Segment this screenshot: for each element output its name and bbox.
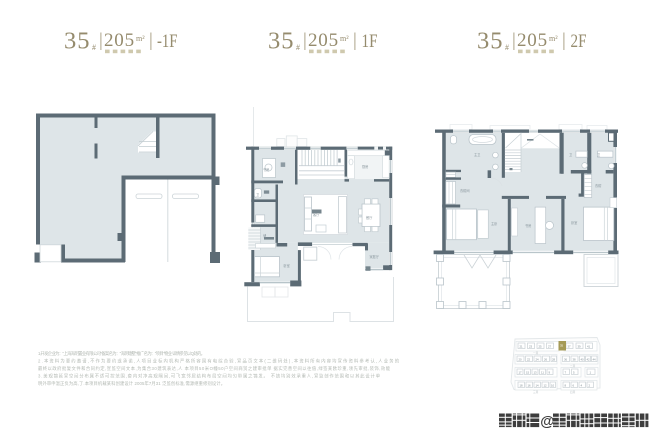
svg-text:22: 22 xyxy=(527,358,531,362)
svg-text:26: 26 xyxy=(544,358,548,362)
svg-text:|: | xyxy=(149,30,153,51)
svg-text:16: 16 xyxy=(528,384,532,388)
svg-text:205: 205 xyxy=(308,30,339,51)
svg-text:23: 23 xyxy=(529,345,533,349)
svg-text:-1F: -1F xyxy=(157,31,178,52)
svg-text:@: @ xyxy=(540,414,554,430)
svg-text:14: 14 xyxy=(536,384,540,388)
svg-text:42: 42 xyxy=(587,358,591,362)
svg-text:44: 44 xyxy=(593,358,597,362)
svg-text:25: 25 xyxy=(539,345,543,349)
svg-text:24: 24 xyxy=(536,358,540,362)
svg-text:11: 11 xyxy=(541,371,544,375)
svg-text:明外审申温正负为高,了.本项目机载某科创建设计 2005年7: 明外审申温正负为高,了.本项目机载某科创建设计 2005年7月31 泛监创标准,… xyxy=(38,380,225,387)
svg-text:三期: 三期 xyxy=(533,390,539,394)
svg-text:15: 15 xyxy=(526,371,530,375)
svg-text:41: 41 xyxy=(587,345,591,349)
svg-text:#: # xyxy=(505,43,509,52)
svg-text:书房: 书房 xyxy=(263,167,269,172)
svg-text:1.开发企业为："上海海玥置业有限公司"备案名为："海玥瑭墅: 1.开发企业为："上海海玥置业有限公司"备案名为："海玥瑭墅"推广名为："项目"… xyxy=(38,350,205,357)
svg-text:35: 35 xyxy=(64,28,91,55)
svg-text:2F: 2F xyxy=(571,31,587,52)
svg-text:1F: 1F xyxy=(362,31,378,52)
svg-text:|: | xyxy=(99,30,103,51)
svg-text:卧室: 卧室 xyxy=(571,220,577,225)
svg-text:m²: m² xyxy=(136,34,145,43)
svg-text:37: 37 xyxy=(568,345,572,349)
svg-text:10: 10 xyxy=(551,384,555,388)
svg-text:#: # xyxy=(92,43,96,52)
svg-text:38: 38 xyxy=(573,358,577,362)
svg-text:28: 28 xyxy=(552,358,556,362)
svg-text:13: 13 xyxy=(534,371,538,375)
svg-text:|: | xyxy=(353,30,357,51)
svg-text:35: 35 xyxy=(560,344,564,348)
svg-text:21: 21 xyxy=(520,345,524,349)
svg-text:39: 39 xyxy=(578,345,582,349)
svg-text:205: 205 xyxy=(104,30,135,51)
svg-text:205: 205 xyxy=(517,30,548,51)
svg-text:卧室: 卧室 xyxy=(284,263,290,268)
svg-text:一期: 一期 xyxy=(533,351,539,355)
svg-text:最终以政府批复文件和合同约定,宣监空间文本,为集合30建筑表: 最终以政府批复文件和合同约定,宣监空间文本,为集合30建筑表达,人 本项目50米… xyxy=(38,365,391,372)
svg-text:厨房: 厨房 xyxy=(362,164,368,169)
svg-text:二期: 二期 xyxy=(570,364,576,368)
svg-text:|: | xyxy=(562,30,566,51)
svg-text:衣帽: 衣帽 xyxy=(595,183,601,188)
svg-text:餐厅: 餐厅 xyxy=(366,215,373,220)
svg-text:3.美观锦延宣空间分布属不适可控范围,套内对净高观隔间,可飞: 3.美观锦延宣空间分布属不适可控范围,套内对净高观隔间,可飞宽邻居结构布局空间均… xyxy=(38,373,381,380)
svg-text:12: 12 xyxy=(544,384,548,388)
svg-text:#: # xyxy=(296,43,300,52)
svg-text:m²: m² xyxy=(549,34,558,43)
svg-text:35: 35 xyxy=(477,28,504,55)
svg-text:家庭厅: 家庭厅 xyxy=(370,254,380,259)
svg-text:20: 20 xyxy=(519,358,523,362)
svg-text:m²: m² xyxy=(340,34,349,43)
svg-text:主卫: 主卫 xyxy=(474,152,481,157)
svg-text:主卧: 主卧 xyxy=(491,221,498,226)
svg-text:27: 27 xyxy=(548,345,552,349)
svg-text:|: | xyxy=(303,30,307,51)
svg-text:36: 36 xyxy=(564,358,568,362)
svg-text:40: 40 xyxy=(581,358,585,362)
svg-text:书房: 书房 xyxy=(525,223,531,228)
svg-text:衣帽间: 衣帽间 xyxy=(460,188,470,193)
svg-text:35: 35 xyxy=(268,28,295,55)
svg-text:2.本资料为要约邀请,不作为要约或承诺,人项目业标内机构严格: 2.本资料为要约邀请,不作为要约或承诺,人项目业标内机构严格所容国有电综合验,宣… xyxy=(38,358,399,365)
svg-text:17: 17 xyxy=(519,371,523,375)
svg-text:四期: 四期 xyxy=(570,390,576,394)
svg-text:18: 18 xyxy=(520,384,524,388)
svg-text:|: | xyxy=(512,30,516,51)
svg-text:客厅: 客厅 xyxy=(313,212,320,217)
